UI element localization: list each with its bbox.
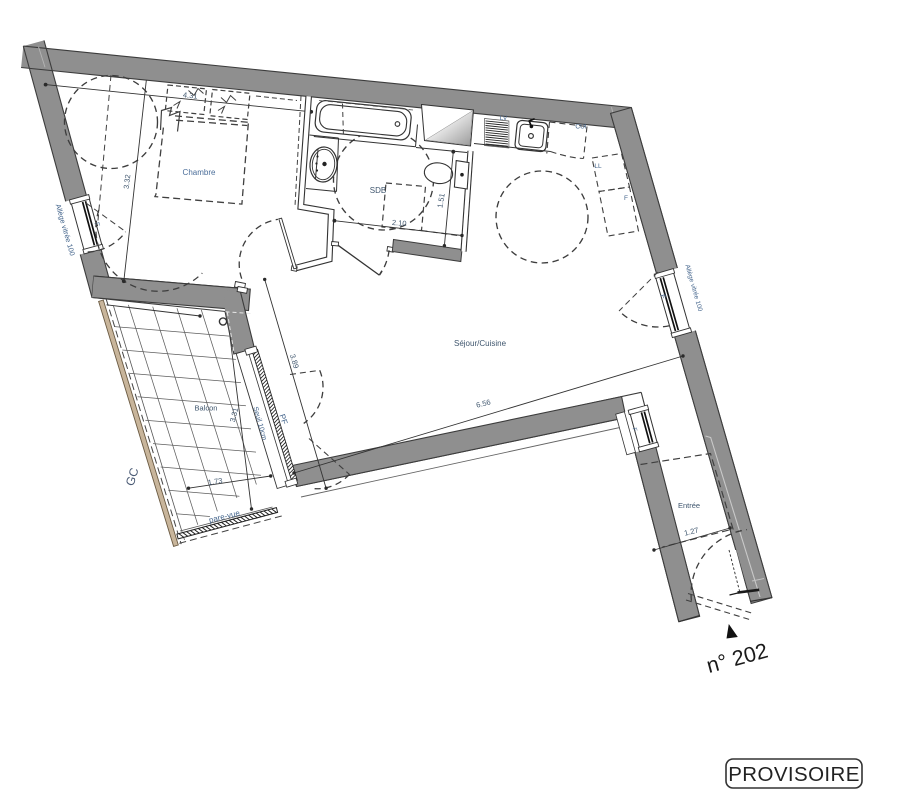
svg-text:1.73: 1.73 — [207, 476, 223, 487]
svg-text:GC: GC — [123, 466, 142, 488]
svg-text:1.51: 1.51 — [435, 193, 446, 209]
svg-text:2.10: 2.10 — [392, 218, 407, 228]
svg-text:PROVISOIRE: PROVISOIRE — [728, 763, 860, 786]
svg-text:n° 202: n° 202 — [704, 639, 770, 678]
svg-text:F: F — [624, 195, 628, 202]
svg-text:Séjour/Cuisine: Séjour/Cuisine — [454, 339, 507, 348]
svg-text:CUI: CUI — [575, 124, 586, 131]
svg-text:LL: LL — [594, 163, 602, 170]
svg-text:Chambre: Chambre — [183, 168, 216, 177]
svg-text:3.32: 3.32 — [122, 174, 133, 190]
svg-text:Entrée: Entrée — [678, 501, 700, 510]
svg-text:1.27: 1.27 — [683, 525, 699, 537]
svg-text:6.56: 6.56 — [475, 397, 491, 409]
svg-text:3.31: 3.31 — [228, 407, 240, 423]
svg-text:SDB: SDB — [370, 186, 386, 195]
svg-text:Balcon: Balcon — [195, 404, 218, 413]
svg-text:3.89: 3.89 — [288, 353, 301, 370]
svg-text:LV: LV — [500, 115, 508, 122]
